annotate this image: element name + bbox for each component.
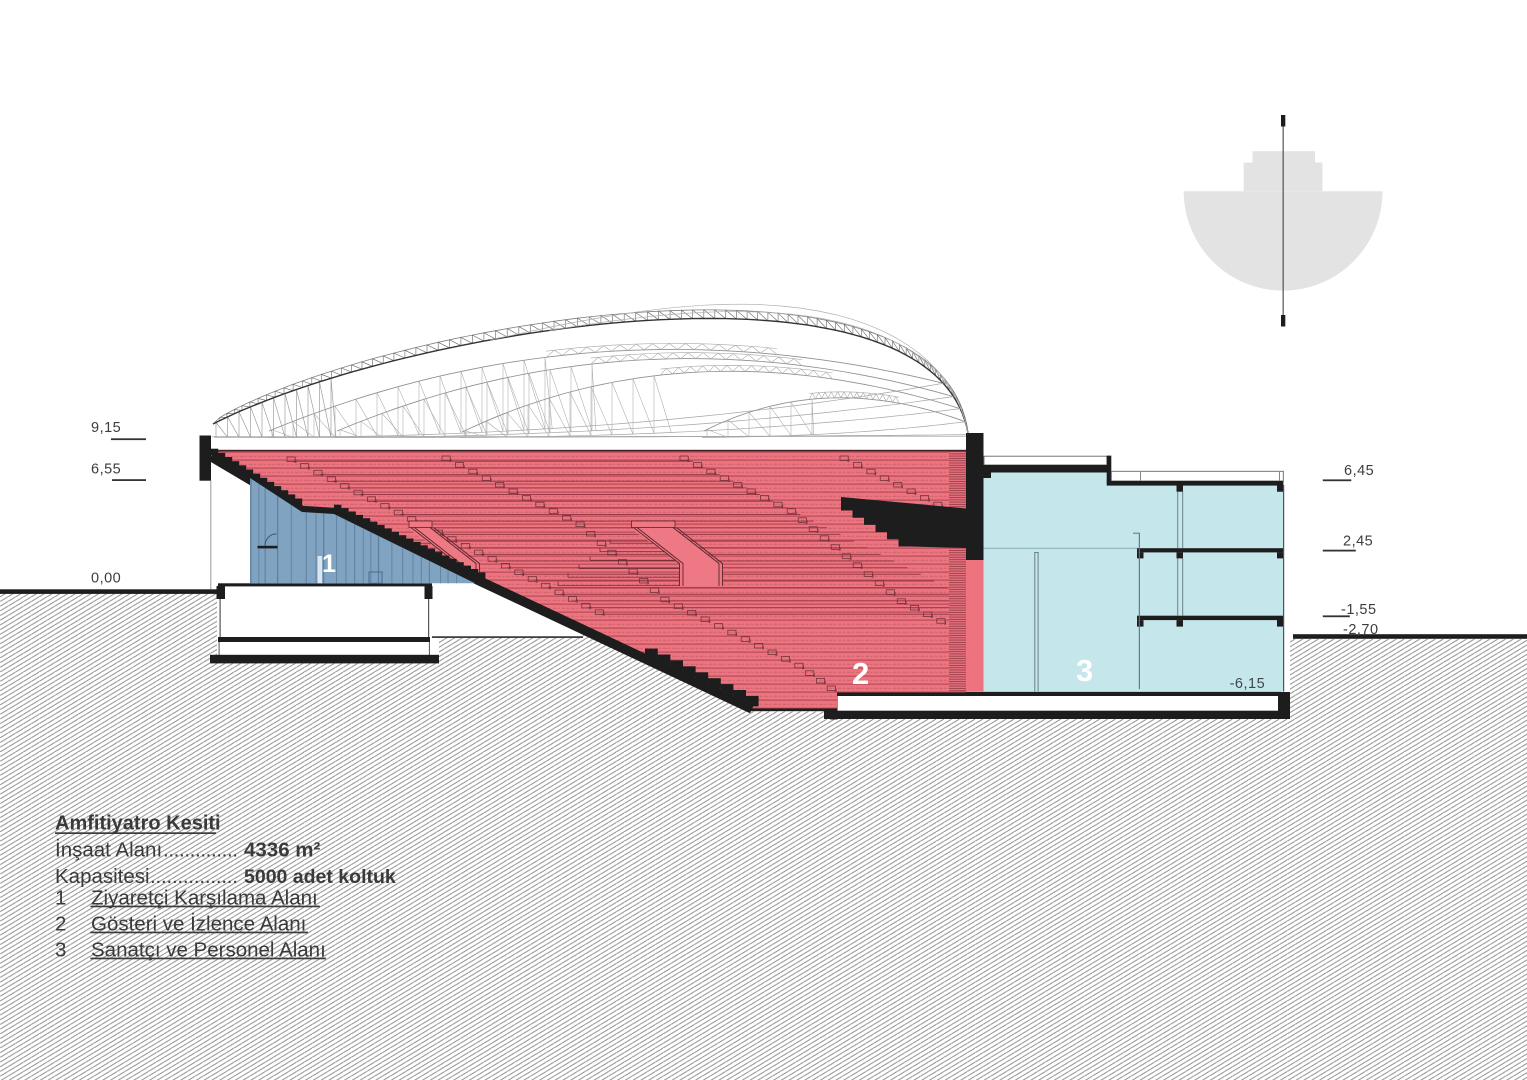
- svg-text:3: 3: [55, 939, 66, 962]
- svg-text:-6,15: -6,15: [1230, 676, 1266, 692]
- svg-text:İnşaat Alanı: İnşaat Alanı: [55, 839, 162, 862]
- svg-text:Kapasitesi: Kapasitesi: [55, 865, 150, 888]
- svg-text:2,45: 2,45: [1343, 533, 1373, 549]
- svg-text:..............: ..............: [163, 839, 238, 862]
- svg-text:4336 m²: 4336 m²: [244, 839, 321, 862]
- svg-text:5000 adet koltuk: 5000 adet koltuk: [244, 866, 396, 888]
- svg-text:2: 2: [55, 913, 66, 936]
- svg-text:1: 1: [55, 887, 66, 910]
- svg-text:2: 2: [852, 656, 869, 691]
- svg-text:................: ................: [150, 865, 238, 888]
- svg-text:-2,70: -2,70: [1343, 622, 1379, 638]
- svg-text:3: 3: [1076, 653, 1093, 688]
- svg-text:-1,55: -1,55: [1341, 602, 1377, 618]
- svg-text:0,00: 0,00: [91, 570, 121, 586]
- svg-text:6,55: 6,55: [91, 461, 121, 477]
- svg-text:1: 1: [322, 550, 336, 578]
- svg-text:6,45: 6,45: [1344, 463, 1374, 479]
- svg-text:Amfitiyatro Kesiti: Amfitiyatro Kesiti: [55, 813, 221, 835]
- svg-text:9,15: 9,15: [91, 420, 121, 436]
